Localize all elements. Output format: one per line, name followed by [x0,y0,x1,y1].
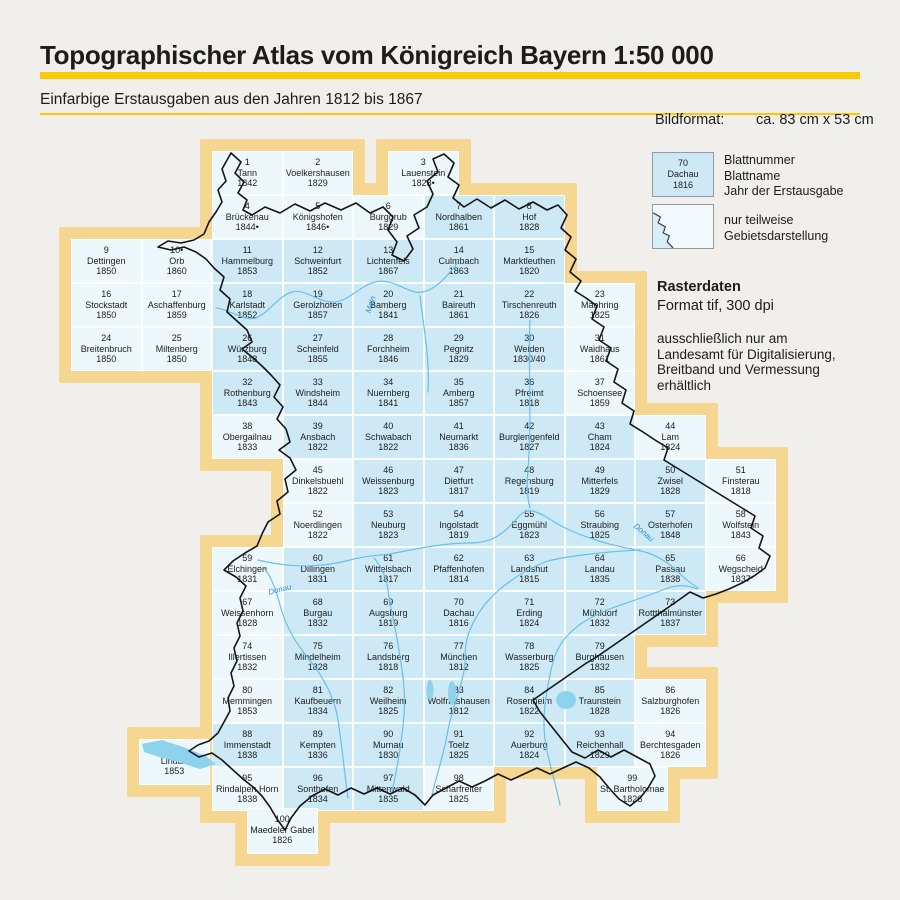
map-sheet-cell: 67Weissenhorn1828 [212,591,283,635]
map-sheet-cell: 90Murnau1830 [353,723,424,767]
map-sheet-cell: 34Nuernberg1841 [353,371,424,415]
map-sheet-cell: 55Eggmühl1823 [494,503,565,547]
sheet-year: 1824 [495,618,564,629]
sheet-number: 96 [284,773,353,784]
map-sheet-cell: 79Burghausen1832 [565,635,636,679]
sheet-number: 56 [566,509,635,520]
sheet-year: 1832 [566,662,635,673]
map-sheet-cell: 94Berchtesgaden1826 [635,723,706,767]
map-sheet-cell: 77München1812 [424,635,495,679]
sheet-year: 1838 [636,574,705,585]
sheet-year: 1844• [213,222,282,233]
map-sheet-cell: 31Waidhaus1861 [565,327,636,371]
sheet-number: 52 [284,509,353,520]
sheet-number: 67 [213,597,282,608]
sheet-number: 91 [425,729,494,740]
sheet-number: 70 [425,597,494,608]
sheet-number: 79 [566,641,635,652]
sheet-year: 1832 [566,618,635,629]
map-sheet-cell: 32Rothenburg1843 [212,371,283,415]
map-sheet-cell: 13Lichtenfels1867 [353,239,424,283]
sheet-year: 1852 [213,310,282,321]
sheet-number: 59 [213,553,282,564]
sheet-name: Straubing [566,520,635,531]
sheet-year: 1853 [140,766,209,777]
sheet-name: Kaufbeuern [284,696,353,707]
sheet-number: 87 [140,745,209,756]
map-sheet-cell: 20Bamberg1841 [353,283,424,327]
map-sheet-cell: 63Landshut1815 [494,547,565,591]
sheet-number: 17 [143,289,212,300]
sheet-year: 1831 [284,574,353,585]
map-sheet-cell: 61Wittelsbach1817 [353,547,424,591]
sheet-year: 1827 [495,442,564,453]
sheet-name: Landau [566,564,635,575]
legend-partial-boundary-icon [653,205,713,248]
map-sheet-cell: 28Forchheim1846 [353,327,424,371]
legend-sample-sheet: 70 Dachau 1816 [652,152,714,197]
sheet-year: 1825 [495,662,564,673]
sheet-year: 1823 [354,530,423,541]
sheet-year: 1824 [636,442,705,453]
legend-partial-caption: nur teilweise Gebietsdarstellung [724,213,828,244]
sheet-name: Mühldorf [566,608,635,619]
map-sheet-cell: 40Schwabach1822 [353,415,424,459]
sheet-year: 1850 [72,354,141,365]
sheet-number: 23 [566,289,635,300]
sheet-year: 1832 [284,618,353,629]
map-sheet-cell: 36Pfreimt1818 [494,371,565,415]
sheet-name: Erding [495,608,564,619]
sheet-name: Burggrub [354,212,423,223]
map-sheet-cell: 65Passau1838 [635,547,706,591]
sheet-name: Mitterfels [566,476,635,487]
sheet-name: Traunstein [566,696,635,707]
sheet-year: 1859 [143,310,212,321]
sheet-number: 13 [354,245,423,256]
sheet-number: 27 [284,333,353,344]
sheet-name: Dinkelsbuehl [284,476,353,487]
sheet-year: 1819 [495,486,564,497]
sheet-year: 1850 [72,310,141,321]
sheet-name: Schoensee [566,388,635,399]
sheet-year: 1812 [425,706,494,717]
sheet-number: 45 [284,465,353,476]
sheet-number: 21 [425,289,494,300]
sheet-year: 1843 [213,398,282,409]
sheet-year: 1846 [354,354,423,365]
sheet-number: 58 [707,509,776,520]
sheet-year: 1826 [248,835,317,846]
sheet-year: 1861 [425,222,494,233]
sheet-year: 1823 [495,530,564,541]
sheet-name: Lindau [140,756,209,767]
sheet-name: Maedeler Gabel [248,825,317,836]
sheet-year: 1825 [566,530,635,541]
sheet-year: 1838 [213,794,282,805]
map-sheet-cell: 12Schweinfurt1852 [283,239,354,283]
sheet-year: 1838 [213,750,282,761]
sheet-name: Miltenberg [143,344,212,355]
sheet-number: 26 [213,333,282,344]
sheet-name: Wasserburg [495,652,564,663]
sheet-number: 54 [425,509,494,520]
sheet-year: 1857 [284,310,353,321]
sheet-year: 1825 [354,706,423,717]
sheet-year: 1825 [425,750,494,761]
sheet-name: Burgau [284,608,353,619]
map-sheet-cell: 24Breitenbruch1850 [71,327,142,371]
sheet-number: 10• [143,245,212,256]
sheet-name: Passau [636,564,705,575]
sheet-number: 43 [566,421,635,432]
sheet-year: 1828 [636,486,705,497]
sheet-name: Aschaffenburg [143,300,212,311]
sheet-year: 1852 [284,266,353,277]
map-sheet-cell: 46Weissenburg1823 [353,459,424,503]
sheet-name: Kempten [284,740,353,751]
sheet-year: 1850 [143,354,212,365]
sheet-name: Mindelheim [284,652,353,663]
sheet-number: 99 [598,773,667,784]
map-sheet-cell: 44Lam1824 [635,415,706,459]
sheet-number: 32 [213,377,282,388]
sheet-name: Gerolzhofen [284,300,353,311]
sheet-year: 1857 [425,398,494,409]
sheet-year: 1836 [425,442,494,453]
map-sheet-cell: 81Kaufbeuern1834 [283,679,354,723]
sheet-number: 49 [566,465,635,476]
sheet-year: 1825 [425,794,494,805]
map-sheet-cell: 88Immenstadt1838 [212,723,283,767]
sheet-number: 82 [354,685,423,696]
sheet-number: 37 [566,377,635,388]
sheet-name: Breitenbruch [72,344,141,355]
sheet-year: 1816 [425,618,494,629]
sheet-year: 1835 [354,794,423,805]
sheet-year: 1828 [213,618,282,629]
sheet-number: 4 [213,201,282,212]
sheet-name: Ingolstadt [425,520,494,531]
map-sheet-cell: 17Aschaffenburg1859 [142,283,213,327]
sheet-name: Lauenstein [389,168,458,179]
map-sheet-cell: 48Regensburg1819 [494,459,565,503]
sheet-number: 60 [284,553,353,564]
sheet-name: Rothenburg [213,388,282,399]
sheet-name: Zwisel [636,476,705,487]
sheet-name: Eggmühl [495,520,564,531]
map-sheet-cell: 27Scheinfeld1855 [283,327,354,371]
map-sheet-cell: 95Rindalpen Horn1838 [212,767,283,811]
sheet-name: Amberg [425,388,494,399]
map-sheet-cell: 93Reichenhall1829 [565,723,636,767]
map-sheet-cell: 89Kempten1836 [283,723,354,767]
map-sheet-cell: 39Ansbach1822 [283,415,354,459]
sheet-name: Salzburghofen [636,696,705,707]
sheet-name: Hammelburg [213,256,282,267]
sheet-number: 44 [636,421,705,432]
sheet-number: 69 [354,597,423,608]
sheet-number: 8 [495,201,564,212]
map-sheet-cell: 41Neumarkt1836 [424,415,495,459]
sheet-number: 74 [213,641,282,652]
sheet-number: 18 [213,289,282,300]
sheet-year: 1818 [495,398,564,409]
sheet-name: Tirschenreuth [495,300,564,311]
sheet-year: 1828 [566,706,635,717]
map-sheet-cell: 33Windsheim1844 [283,371,354,415]
map-sheet-cell: 91Toelz1825 [424,723,495,767]
map-sheet-cell: 6Burggrub1829 [353,195,424,239]
sheet-number: 46 [354,465,423,476]
sheet-number: 14 [425,245,494,256]
map-sheet-cell: 83Wolfratshausen1812 [424,679,495,723]
rasterdaten-note: ausschließlich nur am Landesamt für Digi… [657,331,836,393]
sheet-year: 1819 [425,530,494,541]
map-sheet-cell: 66Wegscheid1837 [706,547,777,591]
legend-sample-caption: Blattnummer Blattname Jahr der Erstausga… [724,153,844,200]
sheet-name: Rottthalmünster [636,608,705,619]
sheet-name: Toelz [425,740,494,751]
map-sheet-cell: 43Cham1824 [565,415,636,459]
sheet-year: 1830/40 [495,354,564,365]
sheet-year: 1829 [566,750,635,761]
sheet-year: 1819 [354,618,423,629]
sheet-year: 1822 [284,486,353,497]
rasterdaten-format: Format tif, 300 dpi [657,298,774,314]
map-sheet-cell: 62Pfaffenhofen1814 [424,547,495,591]
sheet-number: 39 [284,421,353,432]
sheet-number: 53 [354,509,423,520]
map-sheet-cell: 14Culmbach1863 [424,239,495,283]
sheet-year: 1817 [425,486,494,497]
sheet-name: Memmingen [213,696,282,707]
map-sheet-cell: 58Wolfstein1843 [706,503,777,547]
sheet-name: Schwabach [354,432,423,443]
sheet-name: Lichtenfels [354,256,423,267]
sheet-number: 12 [284,245,353,256]
sheet-year: 1841 [354,398,423,409]
sheet-year: 1855 [284,354,353,365]
map-sheet-cell: 30Weiden1830/40 [494,327,565,371]
sheet-year: 1861 [425,310,494,321]
map-sheet-cell: 84Rosenheim1822 [494,679,565,723]
sheet-number: 6 [354,201,423,212]
sheet-number: 63 [495,553,564,564]
map-sheet-cell: 10•Orb1860 [142,239,213,283]
sheet-number: 36 [495,377,564,388]
map-sheet-cell: 82Weilheim1825 [353,679,424,723]
map-sheet-cell: 97Mittenwald1835 [353,767,424,811]
sheet-year: 1834 [284,706,353,717]
sheet-name: Elchingen [213,564,282,575]
sheet-name: Burghausen [566,652,635,663]
sheet-number: 9 [72,245,141,256]
sheet-name: Stockstadt [72,300,141,311]
sheet-name: Culmbach [425,256,494,267]
sheet-year: 1823 [354,486,423,497]
sheet-year: 1812 [425,662,494,673]
sheet-number: 41 [425,421,494,432]
sheet-name: Schweinfurt [284,256,353,267]
map-sheet-cell: 25Miltenberg1850 [142,327,213,371]
map-sheet-cell: 1Tann1842 [212,151,283,195]
sheet-name: Scharfreiter [425,784,494,795]
map-sheet-cell: 2Voelkershausen1829 [283,151,354,195]
sheet-name: Illertissen [213,652,282,663]
sheet-name: Nuernberg [354,388,423,399]
sheet-year: 1846• [284,222,353,233]
sheet-year: 1833 [213,442,282,453]
sheet-number: 28 [354,333,423,344]
sheet-name: Würzburg [213,344,282,355]
sheet-name: Pfaffenhofen [425,564,494,575]
map-sheet-cell: 57Osterhofen1848 [635,503,706,547]
sheet-year: 1815 [495,574,564,585]
map-sheet-cell: 87Lindau1853 [139,739,210,785]
map-sheet-cell: 69Augsburg1819 [353,591,424,635]
sheet-name: Brückenau [213,212,282,223]
sheet-number: 76 [354,641,423,652]
legend-sample-name: Dachau [667,169,698,180]
sheet-number: 31 [566,333,635,344]
sheet-name: Voelkershausen [284,168,353,179]
sheet-number: 84 [495,685,564,696]
map-sheet-cell: 42Burglengenfeld1827 [494,415,565,459]
sheet-year: 1828• [389,178,458,189]
sheet-year: 1863 [425,266,494,277]
map-sheet-cell: 53Neuburg1823 [353,503,424,547]
sheet-name: Waidhaus [566,344,635,355]
sheet-year: 1842 [213,178,282,189]
sheet-name: Neumarkt [425,432,494,443]
sheet-name: Dettingen [72,256,141,267]
map-sheet-cell: 54Ingolstadt1819 [424,503,495,547]
sheet-year: 1818 [707,486,776,497]
sheet-name: Noerdlingen [284,520,353,531]
sheet-name: Landshut [495,564,564,575]
map-sheet-cell: 71Erding1824 [494,591,565,635]
map-sheet-cell: 85Traunstein1828 [565,679,636,723]
map-sheet-cell: 99St. Bartholomae1826 [597,767,668,811]
sheet-number: 88 [213,729,282,740]
map-sheet-cell: 29Pegnitz1829 [424,327,495,371]
map-sheet-cell: 59Elchingen1831 [212,547,283,591]
sheet-year: 1829 [425,354,494,365]
sheet-year: 1828 [284,662,353,673]
sheet-number: 35 [425,377,494,388]
map-sheet-cell: 50Zwisel1828 [635,459,706,503]
sheet-year: 1814 [425,574,494,585]
sheet-number: 19 [284,289,353,300]
sheet-year: 1822 [284,442,353,453]
sheet-number: 65 [636,553,705,564]
bildformat-label: Bildformat: [655,112,724,128]
sheet-number: 98 [425,773,494,784]
sheet-name: St. Bartholomae [598,784,667,795]
sheet-name: Osterhofen [636,520,705,531]
sheet-name: Wolfstein [707,520,776,531]
map-sheet-cell: 51Finsterau1818 [706,459,777,503]
sheet-year: 1859 [566,398,635,409]
sheet-year: 1826 [598,794,667,805]
sheet-number: 29 [425,333,494,344]
map-sheet-cell: 26Würzburg1848 [212,327,283,371]
map-sheet-cell: 68Burgau1832 [283,591,354,635]
sheet-name: Wolfratshausen [425,696,494,707]
sheet-name: Lam [636,432,705,443]
sheet-year: 1848 [213,354,282,365]
sheet-name: Immenstadt [213,740,282,751]
map-sheet-cell: 38Obergailnau1833 [212,415,283,459]
sheet-name: Forchheim [354,344,423,355]
sheet-year: 1860 [143,266,212,277]
sheet-year: 1837 [636,618,705,629]
sheet-name: Dillingen [284,564,353,575]
sheet-name: Scheinfeld [284,344,353,355]
sheet-number: 48 [495,465,564,476]
sheet-year: 1853 [213,706,282,717]
sheet-number: 42 [495,421,564,432]
sheet-name: Burglengenfeld [495,432,564,443]
map-sheet-cell: 75Mindelheim1828 [283,635,354,679]
sheet-year: 1829 [354,222,423,233]
sheet-year: 1826 [495,310,564,321]
sheet-name: Rosenheim [495,696,564,707]
sheet-number: 7 [425,201,494,212]
sheet-year: 1825 [566,310,635,321]
sheet-name: Baireuth [425,300,494,311]
sheet-number: 89 [284,729,353,740]
sheet-number: 3 [389,157,458,168]
map-sheet-cell: 16Stockstadt1850 [71,283,142,327]
sheet-year: 1824 [566,442,635,453]
sheet-name: Landsberg [354,652,423,663]
sheet-number: 2 [284,157,353,168]
sheet-name: Karlstadt [213,300,282,311]
sheet-name: Hof [495,212,564,223]
sheet-number: 64 [566,553,635,564]
sheet-year: 1822 [354,442,423,453]
map-sheet-cell: 7Nordhalben1861 [424,195,495,239]
sheet-year: 1834 [284,794,353,805]
sheet-name: Rindalpen Horn [213,784,282,795]
map-sheet-cell: 49Mitterfels1829 [565,459,636,503]
map-sheet-cell: 18Karlstadt1852 [212,283,283,327]
sheet-number: 68 [284,597,353,608]
map-sheet-cell: 86Salzburghofen1826 [635,679,706,723]
sheet-name: Sonthofen [284,784,353,795]
sheet-name: Neuburg [354,520,423,531]
sheet-number: 40 [354,421,423,432]
sheet-year: 1861 [566,354,635,365]
sheet-name: Pfreimt [495,388,564,399]
sheet-name: Dietfurt [425,476,494,487]
map-sheet-cell: 72Mühldorf1832 [565,591,636,635]
sheet-number: 71 [495,597,564,608]
sheet-name: Weissenhorn [213,608,282,619]
sheet-name: Augsburg [354,608,423,619]
map-sheet-cell: 76Landsberg1818 [353,635,424,679]
sheet-name: Tann [213,168,282,179]
sheet-name: Wittelsbach [354,564,423,575]
map-sheet-cell: 37Schoensee1859 [565,371,636,415]
sheet-number: 72 [566,597,635,608]
sheet-name: Finsterau [707,476,776,487]
sheet-year: 1826 [636,706,705,717]
map-sheet-cell: 96Sonthofen1834 [283,767,354,811]
sheet-name: München [425,652,494,663]
